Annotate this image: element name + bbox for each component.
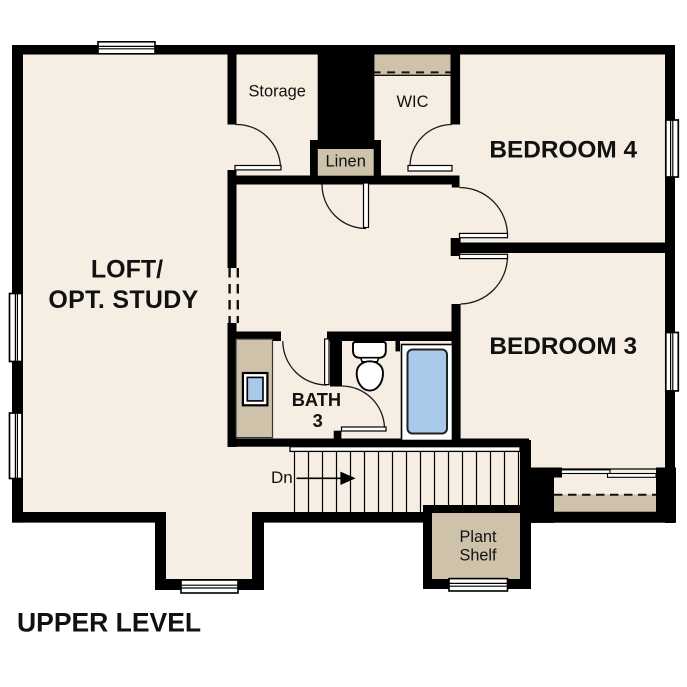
svg-text:Storage: Storage [248, 83, 305, 101]
svg-text:Dn: Dn [271, 468, 293, 487]
svg-text:Plant: Plant [460, 528, 497, 546]
svg-text:UPPER LEVEL: UPPER LEVEL [17, 608, 201, 638]
svg-text:3: 3 [313, 410, 323, 431]
svg-text:OPT. STUDY: OPT. STUDY [48, 286, 198, 314]
svg-text:BEDROOM 4: BEDROOM 4 [489, 137, 637, 164]
svg-text:BATH: BATH [292, 389, 341, 410]
svg-text:Shelf: Shelf [460, 546, 497, 564]
svg-text:WIC: WIC [396, 93, 428, 111]
svg-text:BEDROOM 3: BEDROOM 3 [489, 333, 637, 360]
svg-text:Linen: Linen [326, 153, 366, 171]
svg-text:LOFT/: LOFT/ [91, 256, 163, 284]
